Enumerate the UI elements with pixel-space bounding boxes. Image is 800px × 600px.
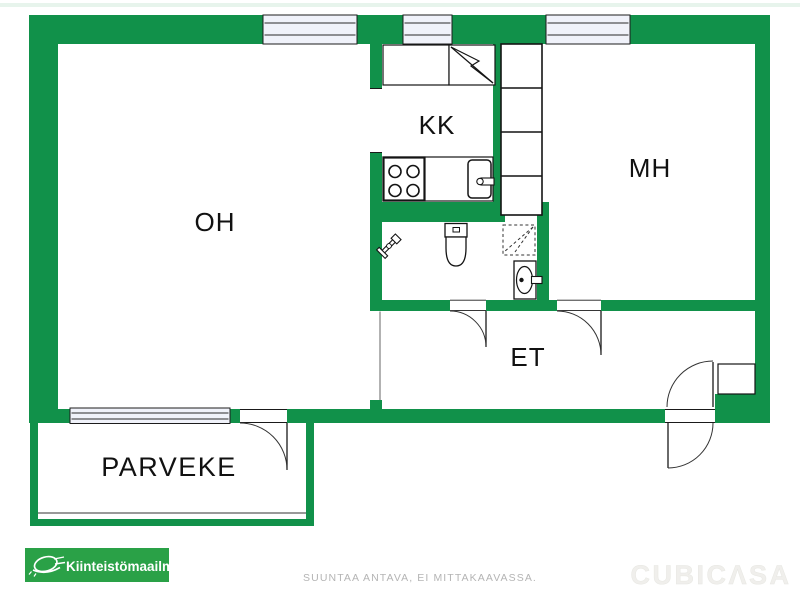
floorplan-drawing: OH KK MH ET PARVEKE Kiinteistömaailma SU…: [0, 0, 800, 600]
wall-niche: [718, 364, 755, 394]
closet-column: [501, 44, 542, 215]
window-bedroom: [546, 15, 630, 44]
room-label-parveke: PARVEKE: [101, 452, 237, 482]
wall-segment-balcony-left: [30, 423, 38, 519]
top-border-fade: [0, 3, 800, 7]
wall-segment-right: [755, 15, 770, 423]
wall-segment-left: [29, 15, 58, 423]
wall-segment-bath-mh: [537, 202, 549, 311]
fridge-icon: [449, 45, 495, 85]
wall-segment-balcony-bottom: [30, 519, 314, 526]
brand-logo-text: Kiinteistömaailma: [66, 559, 182, 574]
cubicasa-watermark: CUBICΛSA: [630, 560, 791, 590]
room-label-mh: MH: [629, 153, 671, 183]
wall-segment-oh-et-stub: [370, 400, 382, 423]
kitchen-sink-icon: [468, 160, 494, 198]
room-label-et: ET: [510, 342, 545, 372]
room-label-kk: KK: [419, 110, 456, 140]
brand-logo: Kiinteistömaailma: [25, 548, 182, 582]
wall-segment-bath-top: [370, 202, 505, 222]
wall-segment-balcony-right: [306, 423, 314, 519]
room-label-oh: OH: [195, 207, 236, 237]
wall-segment-entry-corner: [715, 394, 770, 423]
wall-segment-top: [29, 15, 770, 44]
counter: [383, 45, 449, 85]
floorplan-page: OH KK MH ET PARVEKE Kiinteistömaailma SU…: [0, 0, 800, 600]
window-living-room: [263, 15, 357, 44]
disclaimer-text: SUUNTAA ANTAVA, EI MITTAKAAVASSA.: [303, 572, 537, 584]
window-balcony: [70, 408, 230, 424]
window-kitchen: [403, 15, 452, 44]
wall-segment-oh-kk-lower: [370, 153, 382, 311]
stove-icon: [384, 158, 425, 201]
toilet-icon: [445, 224, 467, 267]
wall-segment-oh-kk-upper: [370, 44, 382, 88]
